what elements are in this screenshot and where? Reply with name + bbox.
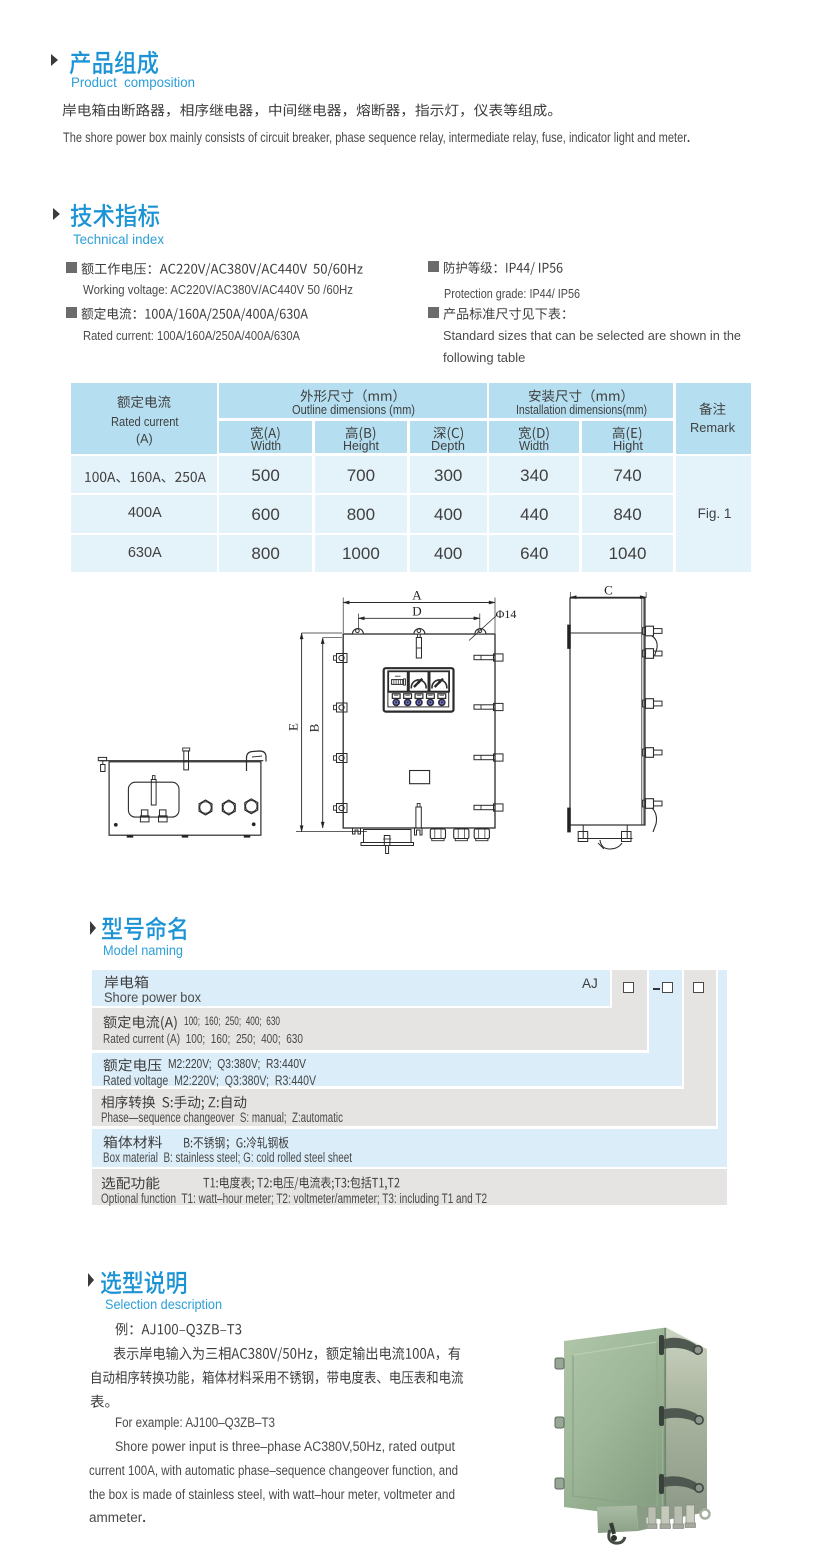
svg-text:B: B: [307, 723, 322, 732]
svg-text:E: E: [286, 723, 301, 731]
svg-text:C: C: [604, 585, 613, 598]
svg-text:A: A: [412, 588, 422, 603]
svg-text:Φ14: Φ14: [496, 607, 517, 621]
svg-text:D: D: [412, 604, 421, 619]
